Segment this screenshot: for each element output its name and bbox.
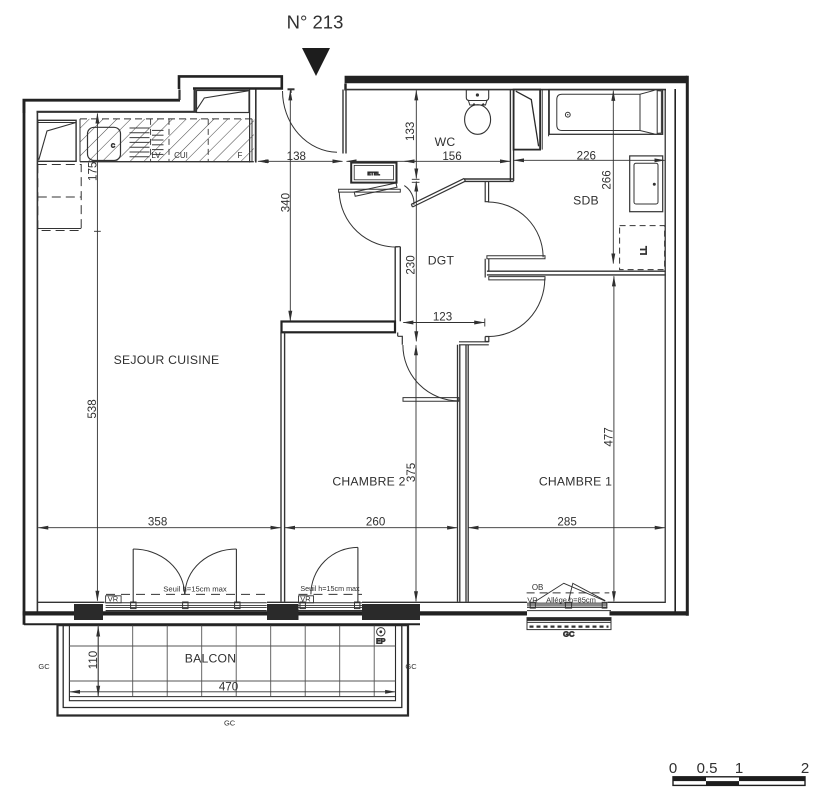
- svg-text:230: 230: [405, 255, 418, 274]
- svg-text:538: 538: [86, 399, 99, 418]
- svg-text:375: 375: [405, 463, 418, 482]
- svg-text:156: 156: [442, 150, 461, 163]
- svg-text:C: C: [111, 144, 115, 150]
- svg-text:285: 285: [557, 515, 576, 528]
- svg-text:WC: WC: [435, 135, 456, 149]
- svg-text:SDB: SDB: [573, 194, 599, 208]
- svg-text:GC: GC: [405, 662, 417, 671]
- svg-text:358: 358: [148, 515, 167, 528]
- svg-text:LL: LL: [640, 246, 649, 255]
- svg-text:BALCON: BALCON: [185, 652, 237, 666]
- svg-text:N° 213: N° 213: [287, 12, 344, 33]
- svg-text:CHAMBRE 1: CHAMBRE 1: [539, 475, 612, 489]
- svg-text:138: 138: [287, 150, 306, 163]
- svg-text:CUI: CUI: [174, 151, 188, 160]
- svg-text:Seuil h=15cm max: Seuil h=15cm max: [300, 584, 360, 593]
- svg-text:VR: VR: [108, 595, 119, 604]
- svg-text:DGT: DGT: [428, 254, 455, 268]
- svg-text:1: 1: [735, 760, 743, 777]
- svg-text:SEJOUR CUISINE: SEJOUR CUISINE: [114, 353, 220, 367]
- svg-text:VR: VR: [527, 596, 538, 605]
- svg-text:Allége h=85cm: Allége h=85cm: [546, 596, 596, 605]
- svg-text:133: 133: [404, 122, 417, 141]
- svg-text:110: 110: [87, 651, 100, 669]
- svg-text:175: 175: [87, 162, 100, 181]
- svg-text:226: 226: [577, 149, 596, 162]
- svg-text:Seuil h=15cm max: Seuil h=15cm max: [163, 585, 227, 594]
- svg-text:GC: GC: [224, 719, 236, 728]
- svg-text:GC: GC: [563, 630, 575, 639]
- svg-text:340: 340: [280, 193, 293, 212]
- svg-text:LV: LV: [151, 151, 161, 160]
- svg-text:266: 266: [601, 170, 614, 189]
- svg-text:EP: EP: [376, 639, 386, 646]
- svg-text:0: 0: [669, 760, 677, 777]
- svg-text:260: 260: [366, 515, 385, 528]
- svg-text:OB: OB: [532, 583, 544, 592]
- svg-text:F: F: [238, 151, 243, 160]
- svg-text:470: 470: [219, 680, 238, 693]
- svg-text:ETEL: ETEL: [367, 171, 380, 176]
- svg-text:CHAMBRE 2: CHAMBRE 2: [332, 475, 405, 489]
- svg-text:123: 123: [433, 311, 452, 324]
- svg-text:2: 2: [801, 760, 809, 777]
- svg-text:VR: VR: [300, 595, 311, 604]
- svg-text:GC: GC: [38, 662, 50, 671]
- svg-text:477: 477: [603, 427, 616, 446]
- svg-text:0.5: 0.5: [697, 760, 718, 777]
